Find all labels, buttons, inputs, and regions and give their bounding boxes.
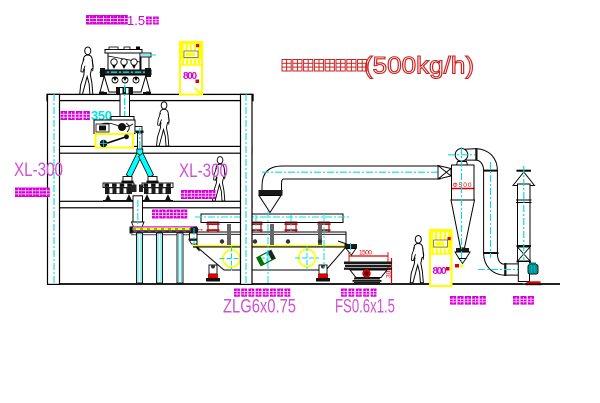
svg-text:XL-300: XL-300 [179, 161, 228, 182]
svg-text:1.5: 1.5 [127, 13, 145, 28]
svg-text:1500: 1500 [359, 250, 372, 257]
svg-text:XL-300: XL-300 [14, 160, 63, 181]
svg-text:(500kg/h): (500kg/h) [364, 53, 474, 80]
svg-text:800: 800 [183, 71, 197, 82]
svg-text:800: 800 [433, 266, 447, 277]
svg-text:FS0.6x1.5: FS0.6x1.5 [335, 297, 395, 318]
svg-text:ZLG6x0.75: ZLG6x0.75 [223, 297, 296, 318]
